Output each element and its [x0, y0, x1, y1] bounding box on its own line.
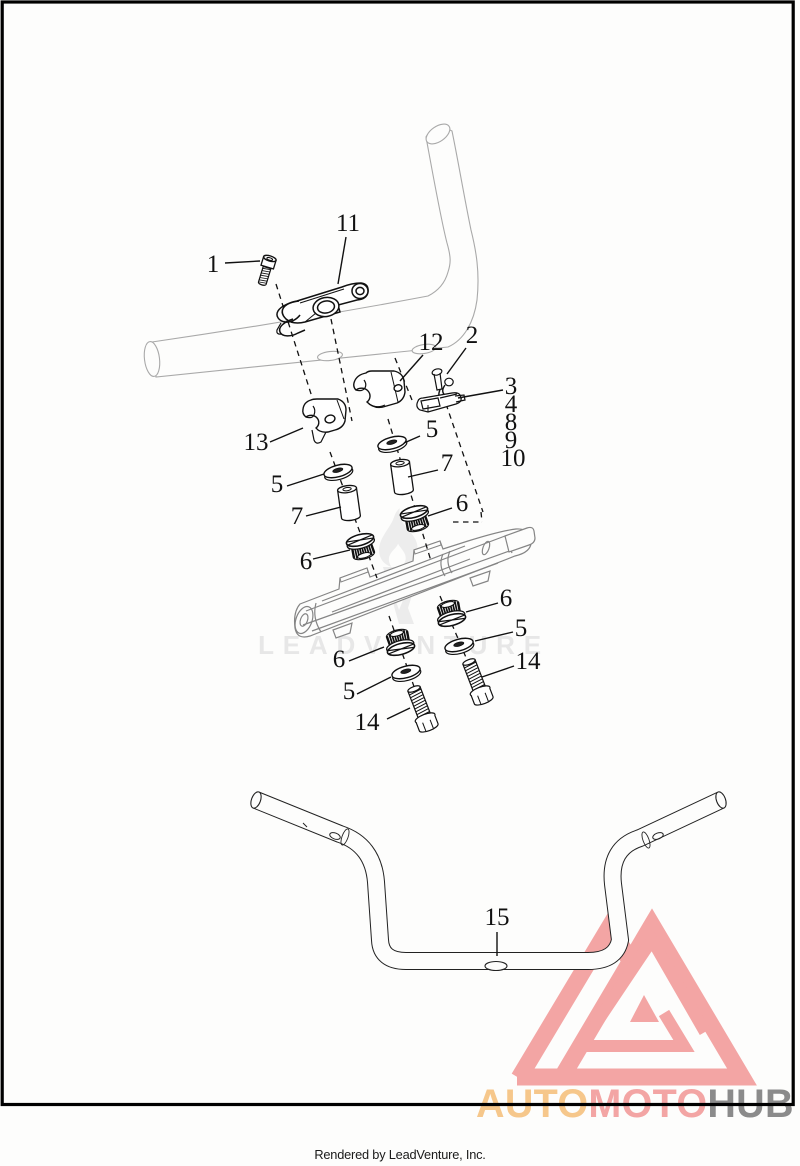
svg-text:6: 6: [300, 548, 313, 575]
svg-text:5: 5: [343, 678, 356, 705]
svg-text:6: 6: [500, 585, 513, 612]
svg-text:10: 10: [501, 445, 526, 472]
svg-text:13: 13: [244, 429, 269, 456]
svg-text:6: 6: [456, 490, 469, 517]
svg-text:5: 5: [515, 615, 528, 642]
svg-text:2: 2: [466, 322, 479, 349]
svg-text:5: 5: [426, 416, 439, 443]
svg-text:Rendered by LeadVenture, Inc.: Rendered by LeadVenture, Inc.: [314, 1147, 485, 1162]
svg-text:15: 15: [485, 904, 510, 931]
svg-text:12: 12: [419, 329, 444, 356]
svg-text:14: 14: [355, 709, 381, 736]
svg-text:7: 7: [291, 503, 304, 530]
svg-text:11: 11: [336, 210, 360, 237]
svg-text:7: 7: [441, 450, 454, 477]
svg-text:1: 1: [207, 251, 220, 278]
svg-text:5: 5: [271, 471, 284, 498]
svg-text:6: 6: [333, 646, 346, 673]
svg-text:14: 14: [516, 648, 542, 675]
